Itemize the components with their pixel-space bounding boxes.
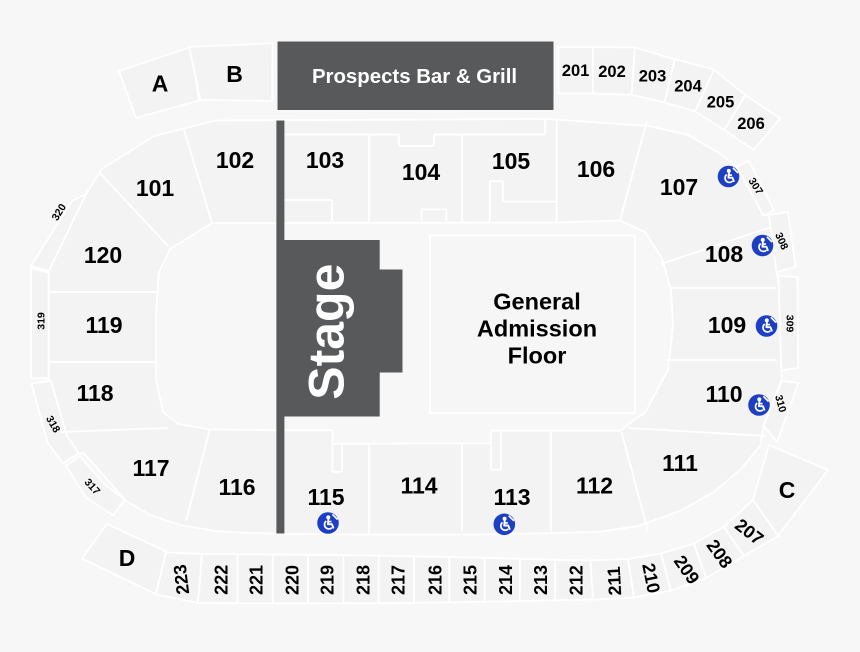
svg-text:211: 211	[604, 566, 625, 596]
svg-text:204: 204	[674, 78, 702, 96]
svg-text:105: 105	[492, 148, 531, 174]
svg-text:B: B	[226, 61, 243, 87]
svg-text:206: 206	[737, 115, 765, 133]
svg-text:120: 120	[84, 242, 122, 268]
svg-text:217: 217	[389, 565, 409, 595]
svg-text:102: 102	[216, 147, 254, 173]
svg-text:221: 221	[247, 565, 267, 595]
svg-text:116: 116	[218, 474, 255, 500]
svg-text:Admission: Admission	[477, 315, 597, 341]
svg-text:212: 212	[567, 565, 587, 595]
svg-text:101: 101	[136, 175, 175, 201]
svg-text:201: 201	[562, 62, 590, 80]
svg-text:Floor: Floor	[508, 342, 567, 368]
svg-text:319: 319	[36, 312, 48, 330]
svg-text:113: 113	[493, 484, 530, 510]
svg-text:General: General	[493, 288, 581, 314]
svg-text:218: 218	[354, 565, 374, 595]
svg-text:205: 205	[707, 93, 735, 111]
svg-text:109: 109	[708, 312, 746, 338]
svg-text:202: 202	[598, 63, 626, 81]
svg-text:114: 114	[400, 473, 437, 499]
svg-text:106: 106	[577, 156, 615, 182]
svg-text:Prospects Bar & Grill: Prospects Bar & Grill	[312, 66, 517, 88]
svg-text:115: 115	[307, 484, 344, 510]
svg-text:214: 214	[496, 565, 516, 595]
svg-text:112: 112	[576, 473, 613, 499]
svg-text:309: 309	[783, 315, 795, 333]
svg-text:223: 223	[170, 563, 194, 595]
svg-text:213: 213	[531, 565, 551, 595]
svg-text:C: C	[779, 477, 796, 503]
svg-text:119: 119	[85, 312, 122, 338]
svg-text:107: 107	[660, 174, 698, 200]
svg-text:117: 117	[132, 455, 169, 481]
svg-text:111: 111	[662, 450, 698, 476]
svg-text:222: 222	[212, 565, 232, 595]
svg-text:216: 216	[426, 565, 446, 595]
svg-text:A: A	[152, 71, 169, 97]
svg-text:110: 110	[705, 381, 742, 407]
svg-text:Stage: Stage	[298, 264, 354, 400]
svg-text:215: 215	[461, 565, 481, 595]
svg-text:219: 219	[318, 565, 338, 595]
svg-text:D: D	[119, 545, 136, 571]
svg-text:103: 103	[306, 147, 344, 173]
svg-text:118: 118	[76, 380, 113, 406]
svg-text:108: 108	[705, 241, 744, 267]
svg-text:220: 220	[283, 565, 303, 595]
svg-text:104: 104	[402, 159, 441, 185]
svg-text:203: 203	[639, 67, 667, 85]
